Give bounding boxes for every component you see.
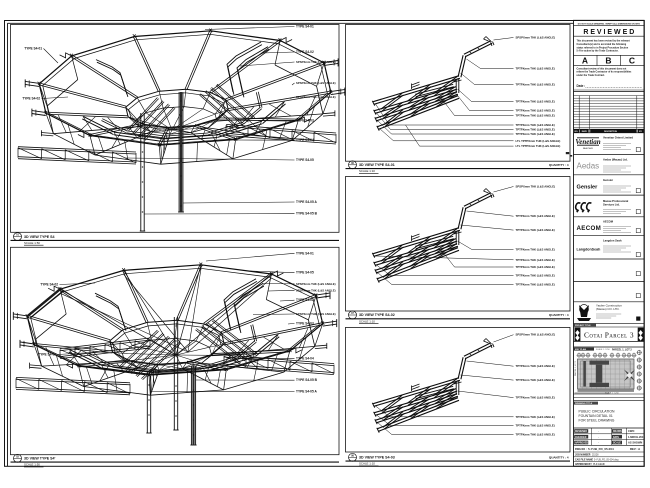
svg-text:SPSPXmm THK (L&S ANGLE): SPSPXmm THK (L&S ANGLE) — [296, 81, 336, 85]
svg-text:TYPE S4-02: TYPE S4-02 — [40, 283, 58, 287]
svg-text:status referred to in Project: status referred to in Project Procedure … — [577, 46, 629, 49]
svg-text:TYPE S4-01: TYPE S4-01 — [296, 25, 314, 29]
svg-text:Macau Professional: Macau Professional — [603, 199, 628, 203]
svg-text:CAD FILE NAME: CAD FILE NAME — [575, 458, 593, 461]
svg-text:AS SHOWN: AS SHOWN — [628, 441, 642, 445]
svg-text:AECOM: AECOM — [603, 220, 614, 224]
svg-text:TPTPXmm THK (L&S ANGLE): TPTPXmm THK (L&S ANGLE) — [516, 67, 555, 71]
svg-text:TYPE S4-02: TYPE S4-02 — [22, 97, 40, 101]
svg-text:LTL TPTPXmm THK (L&S ANGLE): LTL TPTPXmm THK (L&S ANGLE) — [516, 144, 561, 148]
svg-text:FOUNTAIN DETAIL 01: FOUNTAIN DETAIL 01 — [579, 414, 613, 418]
svg-text:TPTPXmm THK (L&S ANGLE): TPTPXmm THK (L&S ANGLE) — [516, 265, 555, 269]
svg-text:REV : A: REV : A — [630, 447, 640, 451]
svg-text:01: 01 — [16, 234, 19, 237]
svg-text:TPTPXmm THK (L&S ANGLE): TPTPXmm THK (L&S ANGLE) — [516, 415, 555, 419]
svg-text:TYPE S4-03: TYPE S4-03 — [296, 321, 314, 325]
svg-text:TYPE S4-05: TYPE S4-05 — [296, 271, 314, 275]
svg-text:QUANTITY : 4: QUANTITY : 4 — [549, 456, 569, 460]
svg-text:B: B — [605, 56, 611, 66]
svg-text:3D VIEW TYPE S4-01: 3D VIEW TYPE S4-01 — [359, 163, 395, 167]
svg-text:Aedas: Aedas — [577, 162, 600, 171]
svg-text:SCALE 1:10: SCALE 1:10 — [359, 319, 375, 323]
svg-text:TPTPXmm THK (L&S ANGLE): TPTPXmm THK (L&S ANGLE) — [516, 214, 555, 218]
svg-text:5-YUB_FD_05-004.dwg: 5-YUB_FD_05-004.dwg — [594, 459, 619, 461]
svg-text:TYPE S4-02: TYPE S4-02 — [296, 50, 314, 54]
svg-text:SCALE 1:10: SCALE 1:10 — [359, 169, 375, 173]
svg-text:SCALE 1:50: SCALE 1:50 — [24, 463, 40, 467]
svg-text:AECOM: AECOM — [577, 225, 602, 232]
svg-text:SCALE 1:10: SCALE 1:10 — [359, 462, 375, 466]
svg-text:KEY PLAN: KEY PLAN — [575, 348, 586, 351]
svg-text:TYPE S4-05: TYPE S4-05 — [296, 158, 314, 162]
svg-text:TPTPXmm THK (L&S ANGLE): TPTPXmm THK (L&S ANGLE) — [516, 432, 555, 436]
svg-text:1-MRCH-2015: 1-MRCH-2015 — [628, 435, 645, 439]
svg-text:PUBLIC CIRCULATION: PUBLIC CIRCULATION — [579, 410, 615, 414]
svg-text:QUANTITY : 4: QUANTITY : 4 — [549, 163, 569, 167]
svg-text:TPTPXmm THK (L&S ANGLE): TPTPXmm THK (L&S ANGLE) — [516, 132, 555, 136]
svg-text:Langdon Seah: Langdon Seah — [603, 239, 622, 243]
svg-text:TPTPXmm THK (L&S ANGLE): TPTPXmm THK (L&S ANGLE) — [516, 378, 555, 382]
svg-text:(Macau) CO. LTD.: (Macau) CO. LTD. — [596, 307, 620, 311]
svg-text:M A C A O: M A C A O — [583, 147, 593, 150]
svg-text:SPSPXmm THK (L&S ANGLE): SPSPXmm THK (L&S ANGLE) — [296, 288, 336, 292]
svg-text:TPTPXmm THK (L&S ANGLE): TPTPXmm THK (L&S ANGLE) — [516, 83, 555, 87]
svg-text:TYPE S4-03: TYPE S4-03 — [296, 118, 314, 122]
svg-text:PARCEL 1, LOT 2: PARCEL 1, LOT 2 — [612, 348, 632, 351]
svg-text:3D VIEW TYPE S4-03: 3D VIEW TYPE S4-03 — [359, 456, 395, 460]
svg-text:TYPE S4-02: TYPE S4-02 — [296, 298, 314, 302]
svg-text:TPTPXmm THK (L&S ANGLE): TPTPXmm THK (L&S ANGLE) — [516, 228, 555, 232]
svg-text:SPSPXmm THK (L&S ANGLE): SPSPXmm THK (L&S ANGLE) — [516, 333, 556, 337]
svg-text:DATE: DATE — [613, 436, 620, 439]
svg-text:TYPE S4-05 A: TYPE S4-05 A — [296, 200, 317, 204]
svg-text:TPTPXmm THK (L&S ANGLE): TPTPXmm THK (L&S ANGLE) — [516, 100, 555, 104]
svg-text:SPSPXmm THK (L&S ANGLE): SPSPXmm THK (L&S ANGLE) — [516, 185, 556, 189]
svg-text:Gensler: Gensler — [577, 185, 599, 191]
svg-text:TPTPXmm THK (L&S ANGLE): TPTPXmm THK (L&S ANGLE) — [516, 396, 555, 400]
svg-text:CWO: CWO — [628, 429, 634, 433]
svg-text:DRAWING TITLE: DRAWING TITLE — [575, 402, 593, 405]
svg-text:TPTPXmm THK (L&S ANGLE): TPTPXmm THK (L&S ANGLE) — [516, 114, 555, 118]
svg-text:21528: 21528 — [592, 455, 599, 457]
svg-text:APPROVED BY: APPROVED BY — [575, 463, 592, 466]
svg-text:TPTPXmm THK (L&S ANGLE): TPTPXmm THK (L&S ANGLE) — [516, 274, 555, 278]
svg-text:Venetian Orient Limited: Venetian Orient Limited — [603, 136, 633, 140]
svg-text:C: C — [629, 56, 635, 66]
svg-text:TPTPXmm THK (L&S ANGLE): TPTPXmm THK (L&S ANGLE) — [516, 123, 555, 127]
svg-text:DRAWN: DRAWN — [613, 430, 622, 433]
svg-text:SPSPXmm THK (L&S ANGLE): SPSPXmm THK (L&S ANGLE) — [296, 60, 336, 64]
svg-text:SPSPXmm THK (L&S ANGLE): SPSPXmm THK (L&S ANGLE) — [296, 95, 336, 99]
svg-text:08: 08 — [351, 454, 354, 457]
svg-text:DWG NO :: DWG NO : — [575, 448, 587, 451]
svg-text:3D VIEW TYPE S4': 3D VIEW TYPE S4' — [24, 457, 56, 461]
svg-text:TPTPXmm THK (L&S ANGLE): TPTPXmm THK (L&S ANGLE) — [516, 128, 555, 132]
svg-text:TYPE S4-05 B: TYPE S4-05 B — [296, 378, 318, 382]
svg-text:This document has been revised: This document has been revised by the re… — [577, 40, 630, 43]
svg-text:07: 07 — [351, 312, 354, 315]
svg-text:TPTPXmm THK (L&S ANGLE): TPTPXmm THK (L&S ANGLE) — [516, 424, 555, 428]
svg-text:relieve the Trade Contractor o: relieve the Trade Contractor of its resp… — [577, 71, 633, 74]
svg-text:3D VIEW TYPE S4-02: 3D VIEW TYPE S4-02 — [359, 313, 395, 317]
svg-text:TYPE S4-04: TYPE S4-04 — [296, 138, 314, 142]
svg-text:TPTPXmm THK (L&S ANGLE): TPTPXmm THK (L&S ANGLE) — [516, 282, 555, 286]
svg-text:A: A — [582, 56, 588, 66]
svg-text:CHECKED: CHECKED — [575, 437, 587, 439]
svg-text:SCALE 1:50: SCALE 1:50 — [24, 241, 40, 245]
svg-text:06: 06 — [351, 162, 354, 165]
svg-text:-: - — [598, 437, 599, 439]
svg-text:5.4 for action by the Trade Co: 5.4 for action by the Trade Contractor. — [577, 50, 619, 53]
svg-text:TYPE S4-05 B: TYPE S4-05 B — [296, 212, 318, 216]
svg-text:LangdonSeah: LangdonSeah — [577, 248, 601, 252]
svg-text:Services Ltd.: Services Ltd. — [603, 202, 620, 206]
svg-text:DO NOT SCALE DRAWING. VERIFY A: DO NOT SCALE DRAWING. VERIFY ALL DIMENSI… — [578, 22, 641, 25]
svg-text:5-YUB_FD_05-004: 5-YUB_FD_05-004 — [588, 447, 614, 451]
svg-text:TPTPXmm THK (L&S ANGLE): TPTPXmm THK (L&S ANGLE) — [516, 109, 555, 113]
svg-text:TYPE S4-04: TYPE S4-04 — [296, 357, 314, 361]
svg-text:SPSPXmm THK (L&S ANGLE): SPSPXmm THK (L&S ANGLE) — [516, 36, 556, 40]
svg-text:APPROVED: APPROVED — [575, 442, 588, 445]
svg-text:Cotai Parcel 3: Cotai Parcel 3 — [584, 330, 634, 339]
svg-text:TPTPXmm THK (L&S ANGLE): TPTPXmm THK (L&S ANGLE) — [516, 247, 555, 251]
svg-text:DESIGNED: DESIGNED — [575, 431, 587, 433]
svg-text:TYPE S4-01: TYPE S4-01 — [24, 47, 42, 51]
svg-text:Aedas (Macau) Ltd.: Aedas (Macau) Ltd. — [603, 158, 628, 162]
svg-text:FOR STEEL DRAWING: FOR STEEL DRAWING — [579, 418, 615, 422]
svg-text:TYPE S4-01: TYPE S4-01 — [296, 251, 314, 255]
svg-text:JOB NUMBER: JOB NUMBER — [575, 455, 591, 457]
svg-text:-: - — [598, 431, 599, 433]
svg-text:TPTPXmm THK (L&S ANGLE): TPTPXmm THK (L&S ANGLE) — [516, 364, 555, 368]
svg-text:under the Trade Contract.: under the Trade Contract. — [577, 74, 606, 77]
svg-text:Consultants(s) and is accorded: Consultants(s) and is accorded the follo… — [577, 43, 627, 46]
svg-text:TPTPXmm THK (L&S ANGLE): TPTPXmm THK (L&S ANGLE) — [516, 258, 555, 262]
svg-text:SPSPXmm THK (L&S ANGLE): SPSPXmm THK (L&S ANGLE) — [296, 282, 336, 286]
svg-text:-: - — [598, 443, 599, 445]
svg-text:YLC LEAD: YLC LEAD — [593, 463, 605, 466]
svg-text:Gensler: Gensler — [603, 178, 613, 182]
svg-text:TYPE S4-05 A: TYPE S4-05 A — [296, 389, 317, 393]
svg-text:SPSPXmm THK (L&S ANGLE): SPSPXmm THK (L&S ANGLE) — [296, 312, 336, 316]
svg-text:Date :: Date : — [577, 84, 586, 88]
svg-text:LTL TPTPXmm THK (L&S ANGLE): LTL TPTPXmm THK (L&S ANGLE) — [516, 139, 561, 143]
svg-text:PARCEL 1, LOT 2: PARCEL 1, LOT 2 — [574, 361, 577, 376]
svg-text:SCALE: SCALE — [613, 442, 621, 445]
svg-text:3D VIEW TYPE S4: 3D VIEW TYPE S4 — [24, 235, 55, 239]
svg-text:R E V I E W E D: R E V I E W E D — [583, 29, 634, 36]
svg-text:TYPE S4-02: TYPE S4-02 — [38, 353, 56, 357]
svg-text:SCALE 1 : 1250: SCALE 1 : 1250 — [596, 348, 610, 351]
svg-text:QUANTITY : 4: QUANTITY : 4 — [549, 313, 569, 317]
svg-text:PROJECT TITLE: PROJECT TITLE — [575, 325, 591, 327]
svg-text:02: 02 — [16, 455, 19, 458]
svg-text:Consultant review of this docu: Consultant review of this document does … — [577, 67, 627, 70]
